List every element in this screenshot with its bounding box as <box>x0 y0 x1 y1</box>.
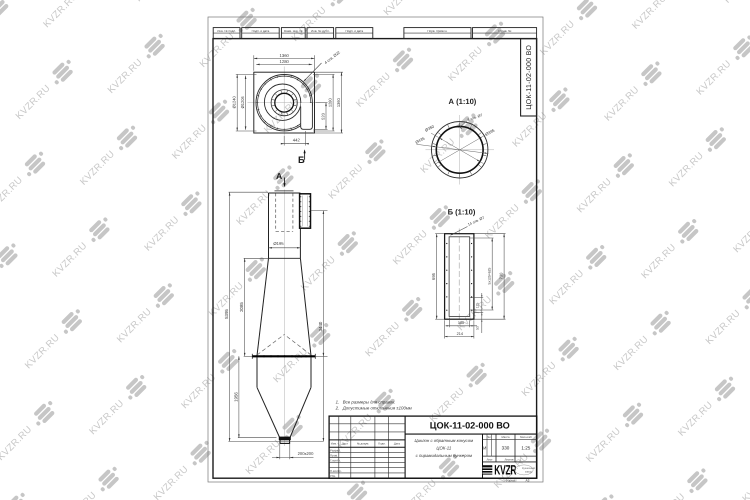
svg-text:53: 53 <box>476 326 480 330</box>
svg-text:520: 520 <box>320 112 325 119</box>
svg-text:завод: завод <box>525 470 532 473</box>
svg-text:Перв. примен.: Перв. примен. <box>427 29 447 33</box>
svg-text:2. Допустимые отклонения ±10: 2. Допустимые отклонения ±100мм <box>335 405 412 410</box>
svg-text:214: 214 <box>457 332 463 336</box>
svg-text:ЦОК-11-02-000 ВО: ЦОК-11-02-000 ВО <box>430 421 510 431</box>
svg-text:ЦОК-11-02-000 ВО: ЦОК-11-02-000 ВО <box>526 45 533 110</box>
svg-text:1. Все размеры для справок.: 1. Все размеры для справок. <box>336 399 396 404</box>
svg-text:А: А <box>276 171 282 181</box>
svg-text:200х200: 200х200 <box>298 451 314 456</box>
svg-text:180: 180 <box>458 321 464 325</box>
svg-text:1360: 1360 <box>280 53 290 58</box>
svg-text:Подп. и дата: Подп. и дата <box>345 29 363 33</box>
svg-text:1956: 1956 <box>233 392 238 402</box>
svg-text:Подп. и дата: Подп. и дата <box>252 29 270 33</box>
svg-text:Ø1205: Ø1205 <box>240 96 245 109</box>
svg-text:5395: 5395 <box>224 309 229 319</box>
svg-text:Изм.: Изм. <box>331 441 337 445</box>
svg-text:695: 695 <box>431 272 436 280</box>
svg-text:330: 330 <box>502 446 510 451</box>
svg-text:Н.контр.: Н.контр. <box>330 469 342 473</box>
svg-text:Масса: Масса <box>502 436 510 439</box>
svg-text:442: 442 <box>293 137 301 142</box>
svg-text:Разраб.: Разраб. <box>330 448 341 452</box>
svg-text:Подп.: Подп. <box>378 441 386 445</box>
svg-text:Листов: Листов <box>504 458 514 462</box>
svg-text:Ø195: Ø195 <box>273 241 284 246</box>
svg-text:А3: А3 <box>526 478 530 482</box>
svg-text:2085: 2085 <box>239 302 244 312</box>
svg-text:1280: 1280 <box>328 97 333 107</box>
svg-text:Пров.: Пров. <box>330 453 338 457</box>
svg-text:А (1:10): А (1:10) <box>448 97 476 106</box>
svg-text:И: И <box>483 446 486 451</box>
svg-text:730: 730 <box>498 272 503 279</box>
svg-text:Лист: Лист <box>486 458 493 462</box>
svg-text:Циклон с обратным конусом: Циклон с обратным конусом <box>415 438 474 443</box>
svg-text:Формат: Формат <box>505 478 517 482</box>
svg-text:5х125=625: 5х125=625 <box>487 267 491 284</box>
svg-text:Дата: Дата <box>394 441 401 445</box>
svg-text:Т.контр.: Т.контр. <box>330 459 341 463</box>
svg-text:3440: 3440 <box>318 321 323 331</box>
svg-text:Справ. №: Справ. № <box>498 29 512 33</box>
svg-text:с пирамидальным бункером: с пирамидальным бункером <box>416 453 472 458</box>
svg-text:125: 125 <box>476 302 480 308</box>
svg-text:Инв. № дубл.: Инв. № дубл. <box>311 29 330 33</box>
svg-text:Масштаб: Масштаб <box>520 436 532 439</box>
svg-text:1360: 1360 <box>336 97 341 107</box>
svg-text:Инв. № подл.: Инв. № подл. <box>217 29 236 33</box>
svg-text:Б (1:10): Б (1:10) <box>448 207 476 216</box>
svg-text:Ø1240: Ø1240 <box>232 96 237 109</box>
svg-text:Б: Б <box>298 154 305 165</box>
svg-text:Взам. инв. №: Взам. инв. № <box>284 29 303 33</box>
svg-text:1280: 1280 <box>280 59 290 64</box>
svg-text:Лит.: Лит. <box>487 436 492 439</box>
svg-text:1:25: 1:25 <box>521 446 530 451</box>
svg-text:KVZR: KVZR <box>494 462 516 477</box>
svg-text:№ докум.: № докум. <box>357 441 370 445</box>
svg-text:Лист: Лист <box>342 441 349 445</box>
svg-text:Утв.: Утв. <box>330 474 336 478</box>
svg-text:ЦОК-11: ЦОК-11 <box>436 446 452 451</box>
